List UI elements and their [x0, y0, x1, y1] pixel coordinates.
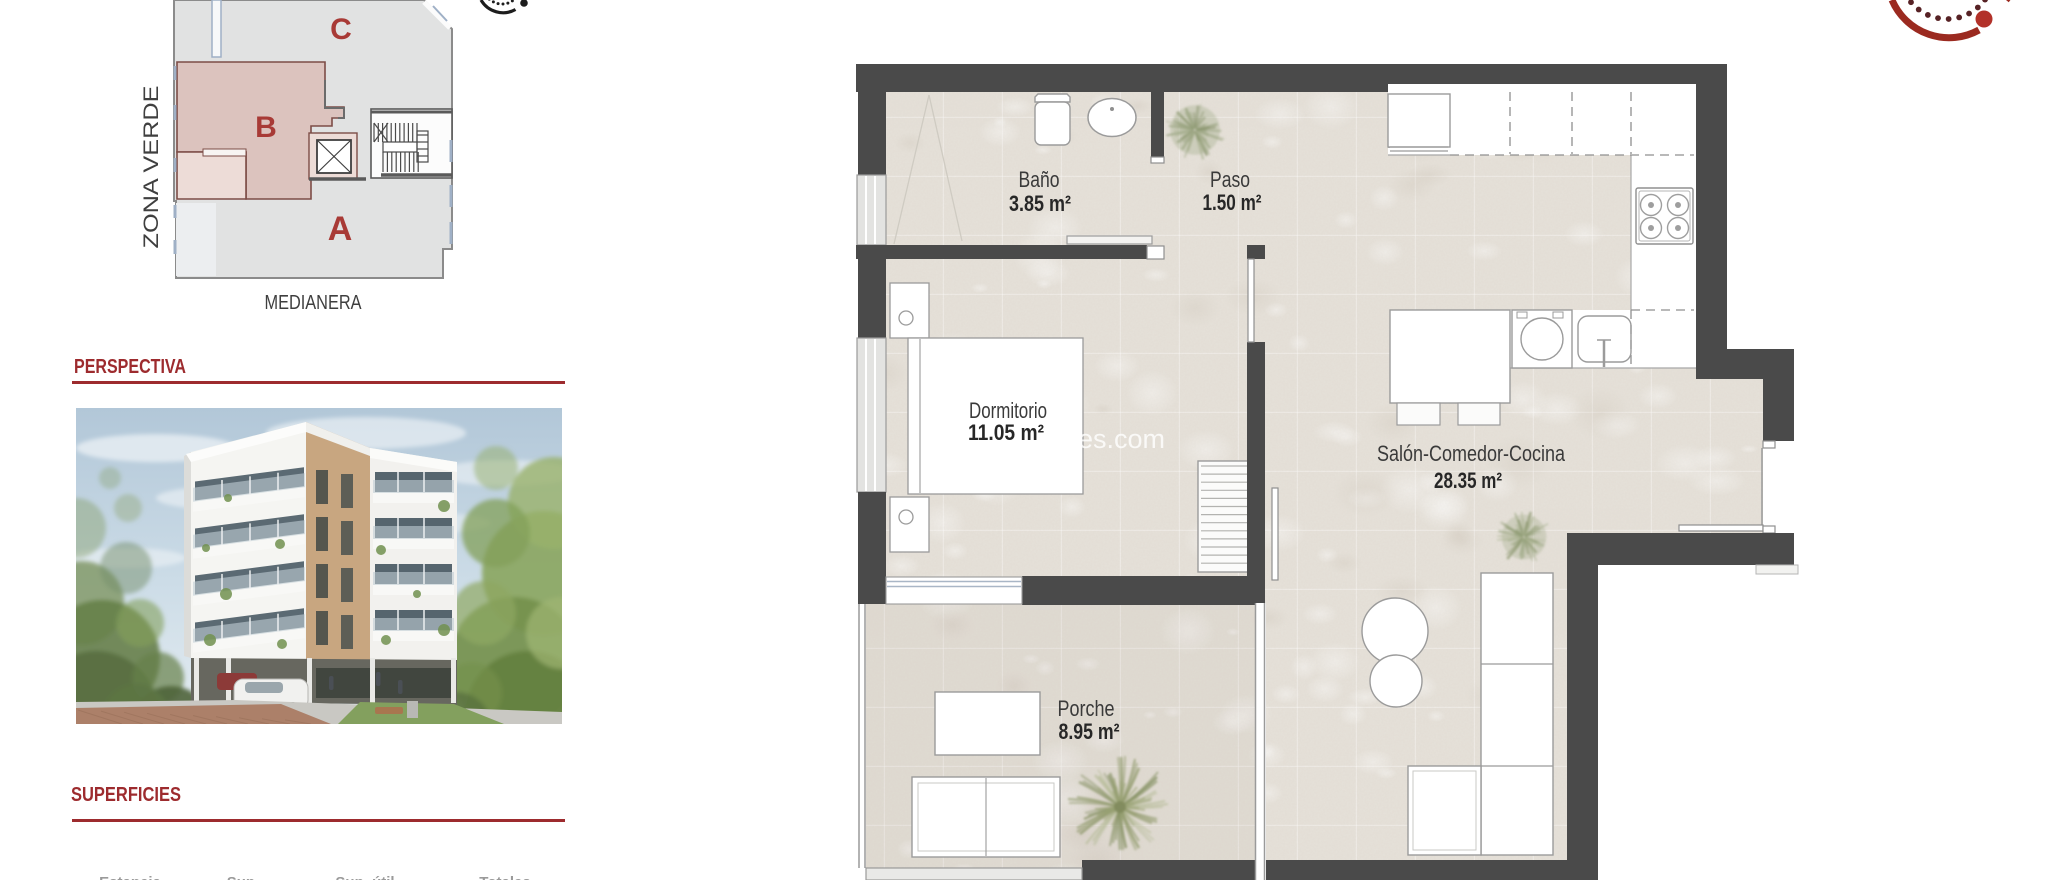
- svg-text:28.35 m²: 28.35 m²: [1434, 468, 1502, 493]
- svg-text:Salón-Comedor-Cocina: Salón-Comedor-Cocina: [1377, 441, 1566, 466]
- svg-text:B: B: [255, 111, 277, 144]
- svg-text:Estancia: Estancia: [99, 874, 161, 880]
- svg-text:Porche: Porche: [1058, 696, 1115, 721]
- svg-text:11.05 m²: 11.05 m²: [968, 420, 1044, 445]
- svg-text:SUPERFICIES: SUPERFICIES: [71, 784, 181, 806]
- svg-text:3.85 m²: 3.85 m²: [1009, 191, 1071, 216]
- svg-text:Sup. útil: Sup. útil: [335, 874, 394, 880]
- svg-text:Paso: Paso: [1210, 167, 1250, 192]
- svg-text:A: A: [328, 210, 353, 248]
- svg-text:C: C: [330, 13, 352, 46]
- svg-text:PERSPECTIVA: PERSPECTIVA: [74, 356, 186, 378]
- svg-text:ZONA VERDE: ZONA VERDE: [140, 86, 163, 249]
- svg-text:MEDIANERA: MEDIANERA: [265, 292, 363, 314]
- svg-text:Totales: Totales: [479, 874, 530, 880]
- svg-text:8.95 m²: 8.95 m²: [1059, 719, 1120, 744]
- svg-text:Sup.: Sup.: [227, 874, 260, 880]
- svg-text:1.50 m²: 1.50 m²: [1203, 190, 1262, 215]
- svg-text:Baño: Baño: [1019, 167, 1060, 192]
